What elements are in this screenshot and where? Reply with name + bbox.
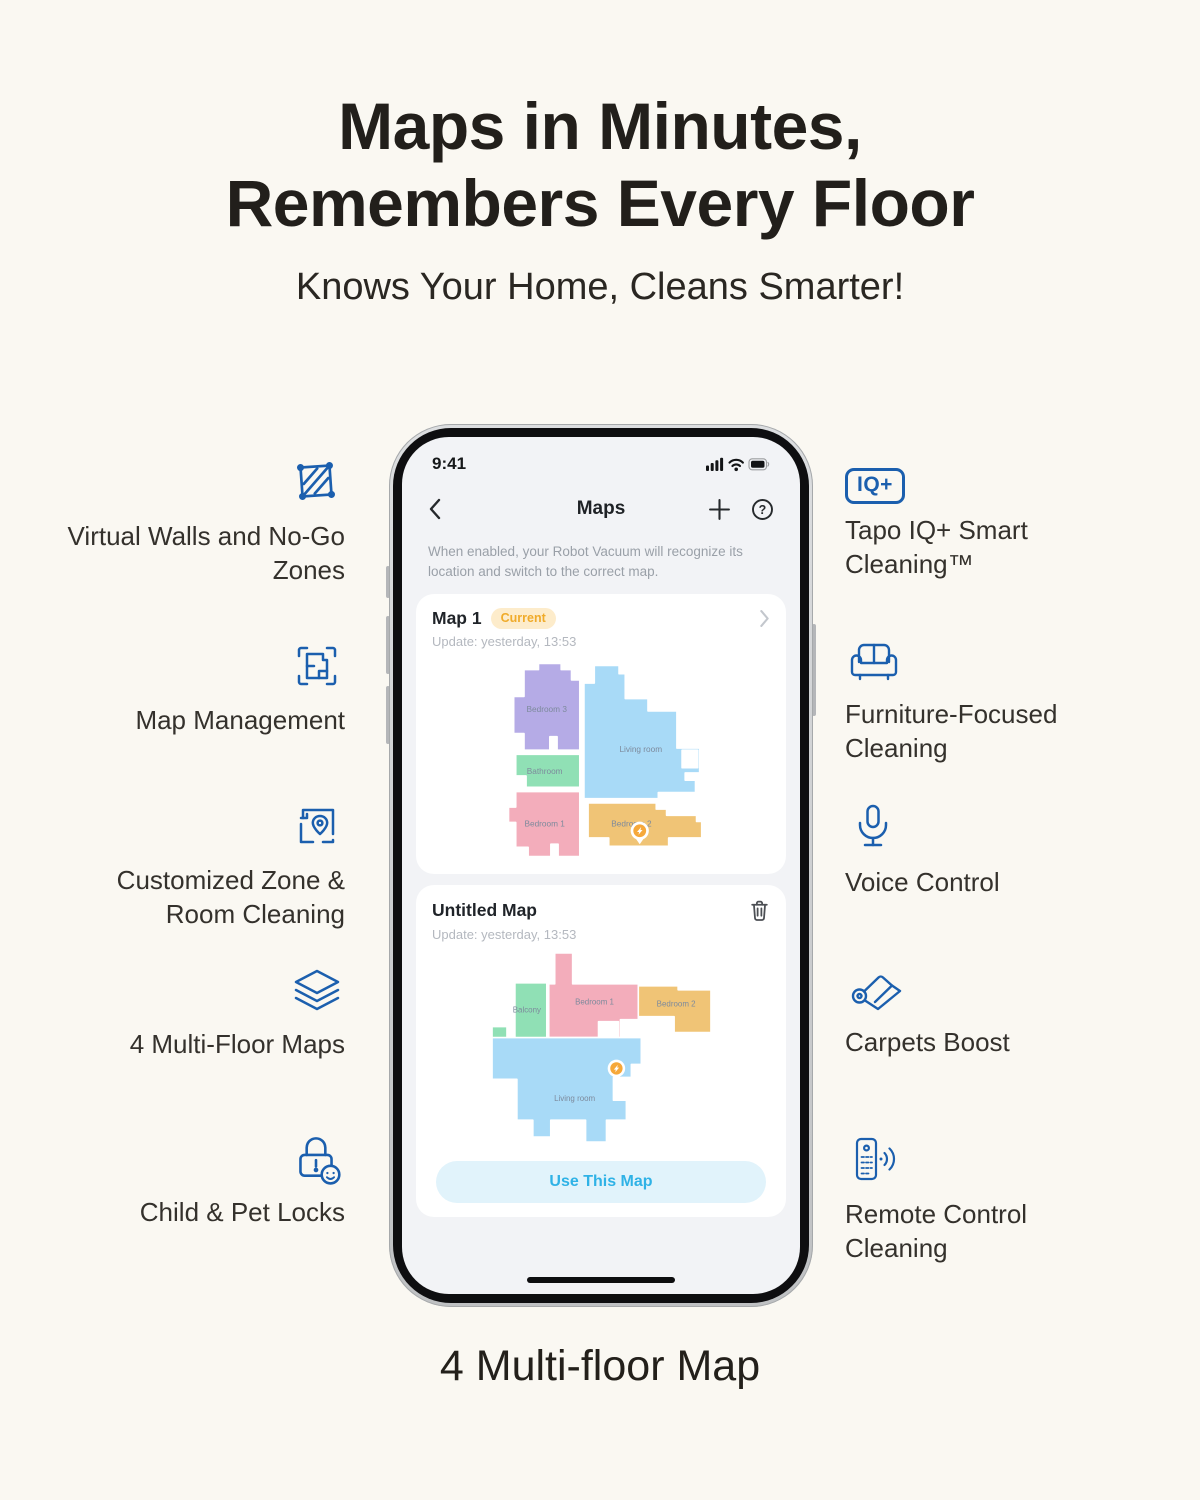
virtual-walls-icon bbox=[287, 452, 345, 510]
multi-floor-maps-icon bbox=[289, 964, 345, 1018]
room-label: Bathroom bbox=[526, 766, 562, 775]
iq-plus-icon: IQ+ bbox=[845, 468, 905, 504]
feature-furniture-cleaning: Furniture-Focused Cleaning bbox=[845, 632, 1125, 766]
feature-remote-control: Remote Control Cleaning bbox=[845, 1130, 1125, 1266]
room-label: Bedroom 1 bbox=[524, 819, 565, 828]
chevron-right-icon[interactable] bbox=[759, 609, 770, 628]
feature-label: Furniture-Focused Cleaning bbox=[845, 697, 1125, 766]
feature-label: Virtual Walls and No-Go Zones bbox=[55, 519, 345, 588]
current-badge: Current bbox=[491, 608, 556, 629]
use-this-map-button[interactable]: Use This Map bbox=[436, 1161, 766, 1203]
feature-label: Voice Control bbox=[845, 865, 1000, 899]
feature-label: Carpets Boost bbox=[845, 1025, 1010, 1059]
phone-screen: 9:41 bbox=[402, 437, 800, 1294]
feature-label: 4 Multi-Floor Maps bbox=[130, 1027, 345, 1061]
title-line-1: Maps in Minutes, bbox=[338, 89, 862, 163]
feature-child-pet-locks: Child & Pet Locks bbox=[55, 1128, 345, 1229]
feature-carpets-boost: Carpets Boost bbox=[845, 958, 1125, 1059]
room-label: Living room bbox=[554, 1094, 595, 1103]
page: Maps in Minutes, Remembers Every Floor K… bbox=[0, 0, 1200, 1500]
sofa-icon bbox=[845, 632, 903, 688]
bottom-caption: 4 Multi-floor Map bbox=[0, 1342, 1200, 1391]
maps-description: When enabled, your Robot Vacuum will rec… bbox=[428, 542, 774, 583]
carpet-icon bbox=[845, 958, 903, 1016]
back-button[interactable] bbox=[428, 497, 442, 521]
zone-room-cleaning-icon bbox=[289, 798, 345, 854]
phone-mockup: 9:41 bbox=[389, 424, 813, 1307]
map1-update-time: Update: yesterday, 13:53 bbox=[432, 634, 770, 649]
feature-label: Tapo IQ+ Smart Cleaning™ bbox=[845, 513, 1125, 582]
map-card-2[interactable]: Untitled Map Update: yesterday, 13:53 bbox=[416, 885, 786, 1217]
feature-label: Child & Pet Locks bbox=[140, 1195, 345, 1229]
microphone-icon bbox=[845, 798, 901, 856]
help-button[interactable]: ? bbox=[751, 498, 774, 521]
room-label: Bedroom 2 bbox=[656, 999, 695, 1008]
floor-plan-map-2: Balcony Bedroom 1 Bedroom 2 Living room bbox=[487, 950, 716, 1149]
feature-label: Map Management bbox=[135, 703, 345, 737]
signal-icon bbox=[706, 457, 723, 470]
feature-label: Remote Control Cleaning bbox=[845, 1197, 1125, 1266]
map2-update-time: Update: yesterday, 13:53 bbox=[432, 927, 770, 942]
room-label: Bedroom 1 bbox=[575, 997, 614, 1006]
room-label: Living room bbox=[619, 745, 662, 754]
page-title: Maps in Minutes, Remembers Every Floor bbox=[0, 88, 1200, 242]
nav-bar: Maps ? bbox=[428, 490, 774, 528]
home-indicator[interactable] bbox=[527, 1277, 675, 1283]
child-pet-locks-icon bbox=[287, 1128, 345, 1186]
page-subtitle: Knows Your Home, Cleans Smarter! bbox=[0, 266, 1200, 309]
map1-title: Map 1 bbox=[432, 608, 482, 629]
title-line-2: Remembers Every Floor bbox=[226, 166, 975, 240]
status-bar: 9:41 bbox=[432, 454, 770, 474]
map2-title: Untitled Map bbox=[432, 900, 537, 921]
add-map-button[interactable] bbox=[708, 498, 731, 521]
status-icons bbox=[706, 457, 770, 472]
feature-map-management: Map Management bbox=[55, 638, 345, 737]
remote-control-icon bbox=[845, 1130, 901, 1188]
room-label: Bedroom 3 bbox=[526, 704, 567, 713]
status-time: 9:41 bbox=[432, 454, 466, 474]
feature-iq-smart-cleaning: IQ+ Tapo IQ+ Smart Cleaning™ bbox=[845, 468, 1125, 582]
room-label: Balcony bbox=[512, 1005, 540, 1014]
map-management-icon bbox=[289, 638, 345, 694]
feature-voice-control: Voice Control bbox=[845, 798, 1125, 899]
feature-multi-floor-maps: 4 Multi-Floor Maps bbox=[55, 964, 345, 1061]
svg-text:?: ? bbox=[759, 502, 767, 516]
wifi-icon bbox=[730, 459, 743, 465]
feature-virtual-walls: Virtual Walls and No-Go Zones bbox=[55, 452, 345, 588]
battery-icon bbox=[749, 458, 769, 469]
map-card-1[interactable]: Map 1 Current Update: yesterday, 13:53 bbox=[416, 594, 786, 874]
feature-label: Customized Zone & Room Cleaning bbox=[55, 863, 345, 932]
floor-plan-map-1: Bedroom 3 Bathroom Bedroom 1 Living room… bbox=[493, 657, 710, 864]
hero: Maps in Minutes, Remembers Every Floor K… bbox=[0, 88, 1200, 309]
delete-map-button[interactable] bbox=[749, 899, 770, 922]
feature-zone-room-cleaning: Customized Zone & Room Cleaning bbox=[55, 798, 345, 932]
